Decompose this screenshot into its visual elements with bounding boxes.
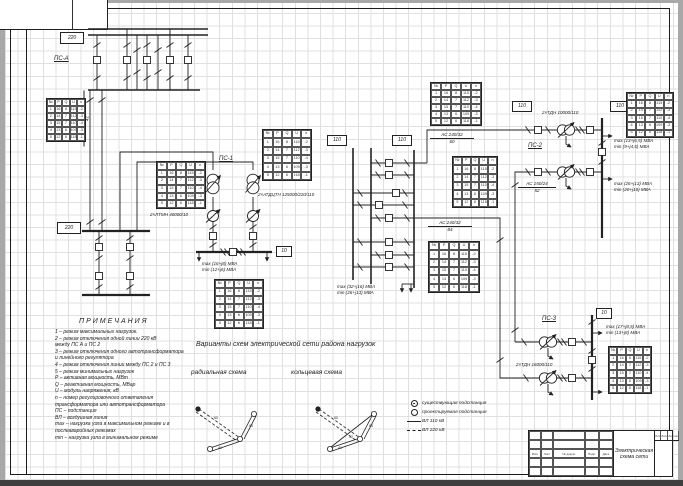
voltage-box-110: 110 xyxy=(392,135,412,146)
legend-row-existing: существующая подстанция xyxy=(406,399,487,408)
voltage-box-10: 10 xyxy=(276,246,292,257)
line-length: 84 xyxy=(428,227,472,233)
load-min: min (20+j10) МВА xyxy=(614,187,652,193)
substation-a-label: ПС-А xyxy=(54,56,69,62)
load-min: min (26+j13) МВА xyxy=(337,290,375,296)
legend: существующая подстанция проектируемая по… xyxy=(406,399,487,435)
drawing-title: Электрическая схема сети xyxy=(614,431,655,476)
sketch-length: 60 xyxy=(214,416,218,420)
regulator-label: 2×ЛТМН 40000/10 xyxy=(150,212,188,217)
load-ps2b: max (26+j13) МВА min (20+j10) МВА xyxy=(614,181,652,193)
value-table: №PQUn1168115-22147112-33157110-44136109-… xyxy=(608,346,652,394)
sheet-headers: Лит.ЛистЛистов xyxy=(655,431,678,441)
title-block-revision-grid: Изм.Лист№ докум.Подп.Дата xyxy=(529,431,614,476)
solid-line-icon xyxy=(406,421,422,422)
load-ps1: max (16+j8) МВА min (12+j6) МВА xyxy=(202,261,237,273)
title-block-sheet-grid: Лит.ЛистЛистов xyxy=(655,431,678,476)
notes-title: ПРИМЕЧАНИЯ xyxy=(79,318,220,325)
line-type: АС 240/32 xyxy=(430,132,474,139)
line-type: АС 240/32 xyxy=(428,220,472,227)
legend-row-vl220: ВЛ 220 кВ xyxy=(406,426,487,435)
sketch-length: 41 xyxy=(218,446,222,450)
voltage-box-110: 110 xyxy=(512,101,532,112)
legend-label: проектируемая подстанция xyxy=(422,410,487,415)
value-table: №PQUn1168115-22147112-33157110-44136109-… xyxy=(430,82,482,126)
substation-2-label: ПС-2 xyxy=(528,143,542,149)
sheet-values xyxy=(655,441,678,476)
existing-substation-icon xyxy=(406,400,422,407)
value-table: №PQUn1168115-22147112-33157110-44136109-… xyxy=(428,241,480,293)
load-ps3: max (17+j8,5) МВА min (13+j8) МВА xyxy=(606,324,645,336)
value-table: №PQUn1168115-22147112-33157110-44136109-… xyxy=(156,161,206,209)
value-table: №PQUn1168115-22147112-33157110-44136109-… xyxy=(452,156,498,208)
value-table: №PQUn1168115-22147112-33157110-44136109-… xyxy=(214,279,264,329)
sketch-length: 52 xyxy=(349,435,353,439)
legend-row-vl110: ВЛ 110 кВ xyxy=(406,417,487,426)
sketch-length: 84 xyxy=(249,424,253,428)
variants-caption: Варианты схем электрической сети района … xyxy=(196,341,375,348)
substation-1-label: ПС-1 xyxy=(219,156,233,162)
sketch-length: 41 xyxy=(338,446,342,450)
voltage-box-220: 220 xyxy=(57,222,81,234)
planned-substation-icon xyxy=(406,409,422,416)
legend-label: ВЛ 220 кВ xyxy=(422,428,445,433)
title-block: Изм.Лист№ докум.Подп.Дата Электрическая … xyxy=(528,430,673,477)
load-ps2a: max (13+j6,5) МВА min (9+j4,5) МВА xyxy=(614,138,653,150)
transformer-ps2-label: 2×ТДН 10000/110 xyxy=(542,110,578,115)
load-min: min (12+j6) МВА xyxy=(202,267,237,273)
sketch-length: 84 xyxy=(369,424,373,428)
value-table: №PQUn1168115-22147112-33157110-44136109-… xyxy=(262,129,312,181)
substation-3-group xyxy=(515,315,602,400)
load-mid: max (32+j16) МВА min (26+j13) МВА xyxy=(337,284,375,296)
ring-scheme-sketch xyxy=(316,407,377,452)
notes-block: ПРИМЕЧАНИЯ 1 – режим максимальных нагруз… xyxy=(55,318,220,441)
substation-1-group xyxy=(196,174,272,261)
voltage-box-220: 220 xyxy=(60,32,84,44)
line-type: АС 150/24 xyxy=(518,181,556,188)
ring-caption: кольцевая схема xyxy=(291,369,342,376)
line-label-ring1: АС 240/32 60 xyxy=(430,132,474,145)
line-length: 60 xyxy=(430,139,474,145)
line-length: 52 xyxy=(518,188,556,194)
legend-label: существующая подстанция xyxy=(422,401,486,406)
load-min: min (13+j8) МВА xyxy=(606,330,645,336)
scanned-drawing-sheet: ПС-А ПС-1 ПС-2 ПС-3 220 220 110 110 110 … xyxy=(0,0,683,486)
voltage-box-110: 110 xyxy=(327,135,347,146)
legend-label: ВЛ 110 кВ xyxy=(422,419,444,424)
sketch-length: 60 xyxy=(334,416,338,420)
legend-row-planned: проектируемая подстанция xyxy=(406,408,487,417)
line-label-ring2: АС 240/32 84 xyxy=(428,220,472,233)
load-min: min (9+j4,5) МВА xyxy=(614,144,653,150)
line-label-ring3: АС 150/24 52 xyxy=(518,181,556,194)
dashed-line-icon xyxy=(406,430,422,431)
value-table: №PQUn1168115-22147112-33157110-44136109-… xyxy=(46,98,86,142)
radial-caption: радиальная схема xyxy=(191,369,246,376)
voltage-box-10: 10 xyxy=(596,308,612,319)
value-table: №PQUn1168115-22147112-33157110-44136109-… xyxy=(626,92,674,138)
transformer-ps3-label: 2×ТДН 16000/110 xyxy=(516,362,552,367)
substation-3-label: ПС-3 xyxy=(542,316,556,322)
autotransformer-label: 2×АТДЦТН 125000/220/110 xyxy=(258,192,314,197)
